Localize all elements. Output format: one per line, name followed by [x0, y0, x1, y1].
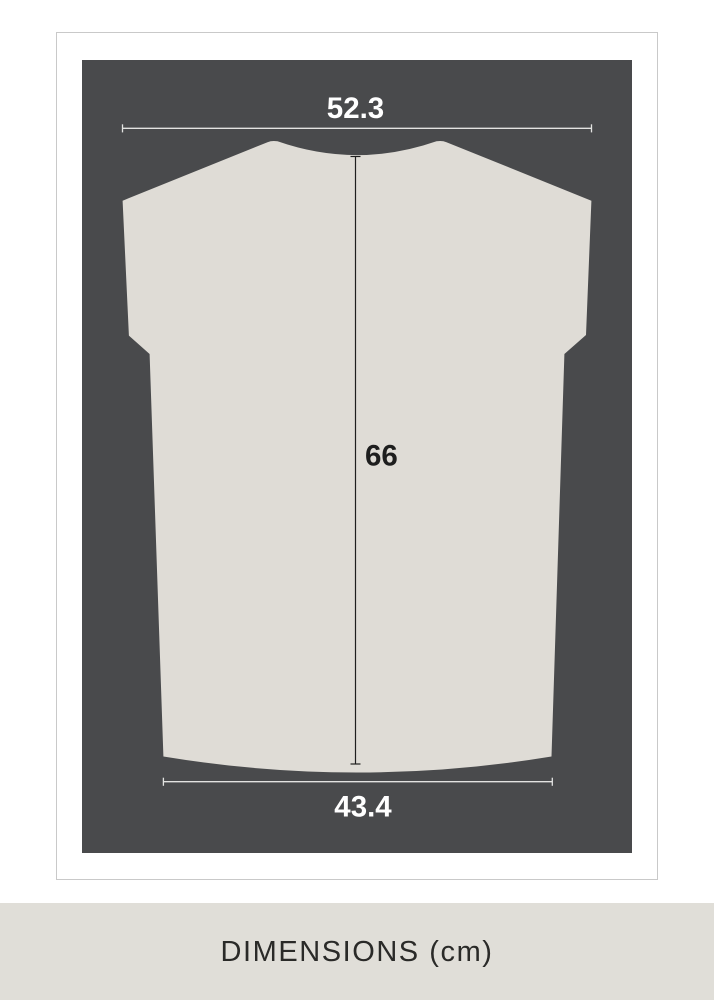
- svg-text:43.4: 43.4: [334, 791, 392, 824]
- svg-text:52.3: 52.3: [327, 92, 384, 125]
- svg-text:66: 66: [365, 440, 398, 473]
